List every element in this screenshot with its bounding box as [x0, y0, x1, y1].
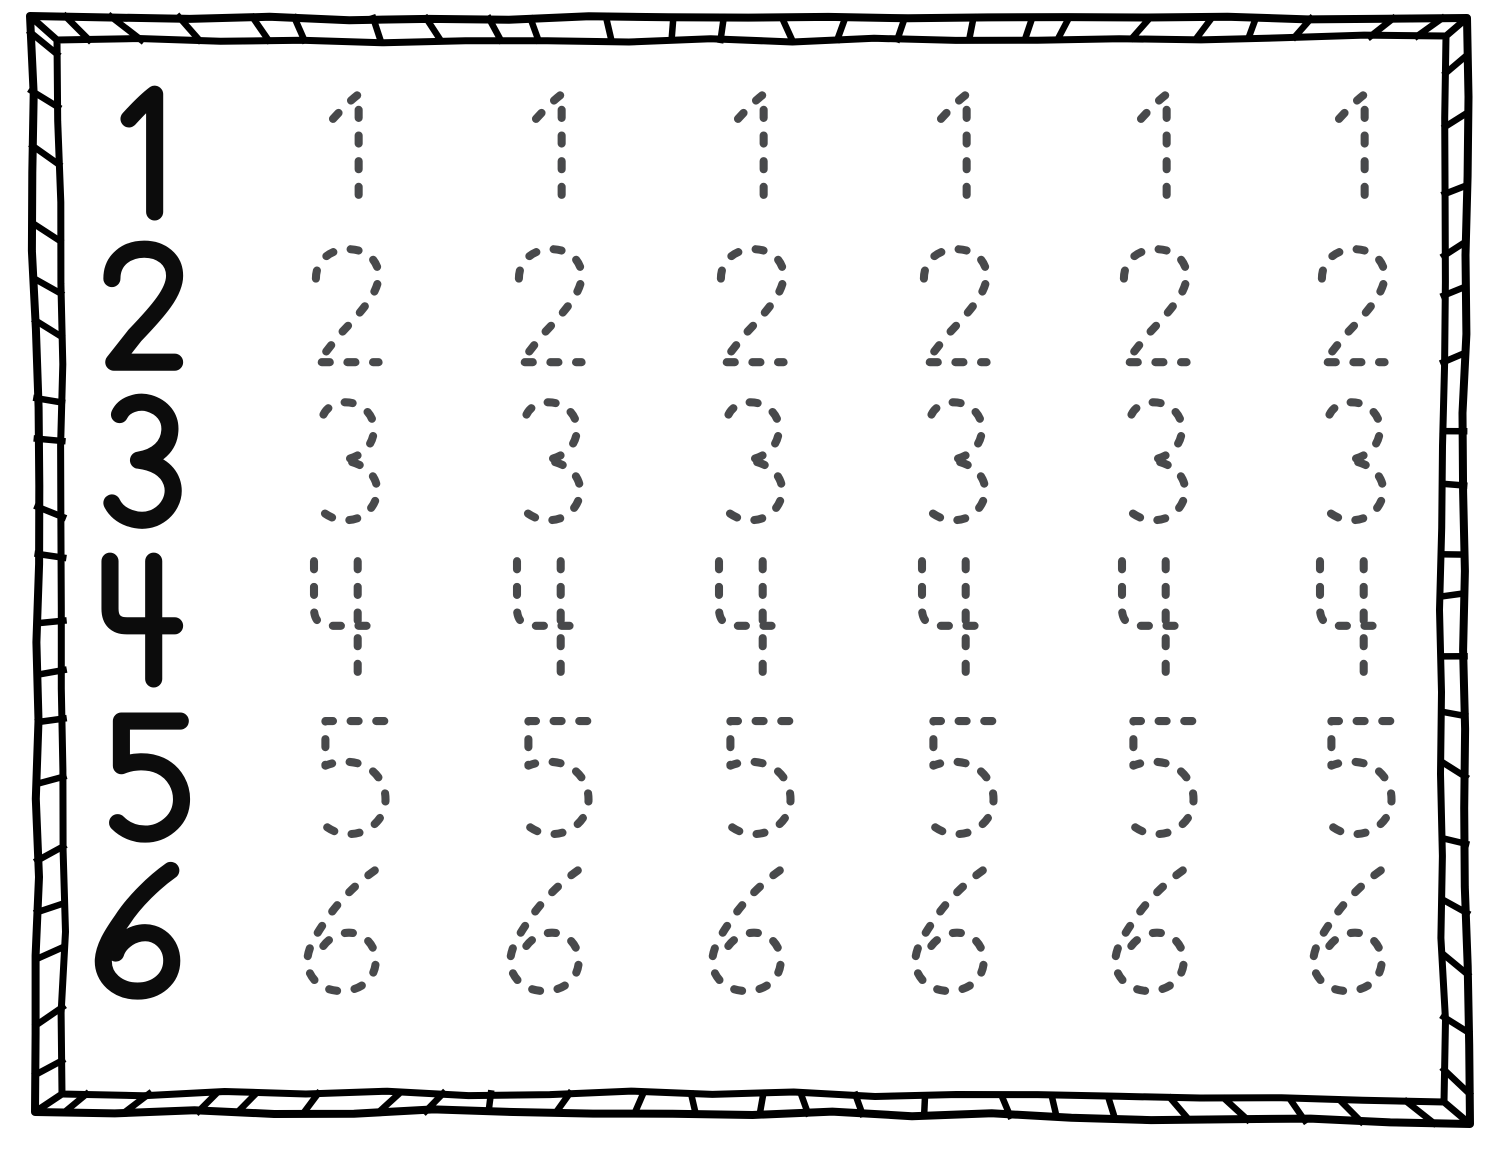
traced-number-6	[498, 859, 612, 1011]
solid-digit-stroke-3	[112, 402, 173, 520]
solid-number-2	[91, 233, 205, 385]
traced-digit-stroke-3	[1322, 402, 1383, 520]
traced-digit-stroke-6	[915, 870, 983, 991]
traced-number-1	[295, 79, 409, 231]
traced-number-1	[700, 79, 814, 231]
traced-number-1	[1103, 79, 1217, 231]
traced-number-2	[295, 233, 409, 385]
worksheet-page	[0, 0, 1500, 1150]
traced-digit-stroke-1	[738, 94, 764, 212]
traced-number-4	[903, 546, 1017, 698]
traced-digit-stroke-3	[924, 402, 985, 520]
traced-number-2	[1103, 233, 1217, 385]
traced-digit-stroke-2	[924, 249, 987, 362]
traced-digit-stroke-5	[525, 721, 589, 834]
traced-digit-stroke-2	[1322, 249, 1385, 362]
traced-number-4	[295, 546, 409, 698]
traced-number-5	[1301, 703, 1415, 855]
traced-digit-stroke-4	[1320, 561, 1385, 679]
traced-digit-stroke-6	[510, 870, 578, 991]
traced-digit-stroke-4	[1122, 561, 1187, 679]
traced-number-5	[1103, 703, 1217, 855]
traced-digit-stroke-1	[1339, 94, 1365, 212]
traced-number-3	[498, 388, 612, 540]
traced-number-6	[700, 859, 814, 1011]
traced-number-1	[903, 79, 1017, 231]
traced-digit-stroke-1	[333, 94, 359, 212]
traced-number-1	[1301, 79, 1415, 231]
traced-digit-stroke-4	[719, 561, 784, 679]
traced-number-2	[903, 233, 1017, 385]
traced-number-2	[700, 233, 814, 385]
traced-digit-stroke-5	[1130, 721, 1194, 834]
traced-digit-stroke-5	[1328, 721, 1392, 834]
traced-digit-stroke-6	[712, 870, 780, 991]
traced-number-5	[903, 703, 1017, 855]
traced-digit-stroke-3	[721, 402, 782, 520]
solid-number-5	[91, 703, 205, 855]
traced-digit-stroke-1	[536, 94, 562, 212]
traced-number-6	[295, 859, 409, 1011]
traced-digit-stroke-4	[517, 561, 582, 679]
solid-number-1	[91, 79, 205, 231]
traced-digit-stroke-3	[519, 402, 580, 520]
traced-number-2	[1301, 233, 1415, 385]
traced-number-5	[498, 703, 612, 855]
traced-number-2	[498, 233, 612, 385]
traced-digit-stroke-4	[922, 561, 987, 679]
traced-number-4	[1103, 546, 1217, 698]
traced-digit-stroke-3	[1124, 402, 1185, 520]
solid-number-6	[91, 859, 205, 1011]
traced-digit-stroke-6	[1115, 870, 1183, 991]
traced-digit-stroke-3	[316, 402, 377, 520]
traced-digit-stroke-1	[941, 94, 967, 212]
traced-digit-stroke-2	[1124, 249, 1187, 362]
traced-number-3	[1301, 388, 1415, 540]
traced-digit-stroke-2	[519, 249, 582, 362]
traced-number-6	[1301, 859, 1415, 1011]
traced-number-3	[1103, 388, 1217, 540]
traced-digit-stroke-6	[1313, 870, 1381, 991]
traced-number-5	[700, 703, 814, 855]
solid-digit-stroke-2	[112, 249, 175, 362]
traced-number-4	[700, 546, 814, 698]
traced-number-6	[903, 859, 1017, 1011]
traced-number-5	[295, 703, 409, 855]
traced-digit-stroke-2	[316, 249, 379, 362]
solid-digit-stroke-1	[129, 94, 155, 212]
solid-digit-stroke-6	[103, 870, 171, 991]
traced-digit-stroke-2	[721, 249, 784, 362]
traced-number-3	[700, 388, 814, 540]
traced-digit-stroke-5	[322, 721, 386, 834]
solid-number-3	[91, 388, 205, 540]
number-tracing-grid	[0, 0, 1500, 1150]
traced-digit-stroke-1	[1141, 94, 1167, 212]
traced-digit-stroke-6	[307, 870, 375, 991]
traced-number-4	[1301, 546, 1415, 698]
traced-number-6	[1103, 859, 1217, 1011]
solid-number-4	[91, 546, 205, 698]
solid-digit-stroke-4	[110, 561, 175, 679]
traced-digit-stroke-4	[314, 561, 379, 679]
traced-number-3	[903, 388, 1017, 540]
traced-number-1	[498, 79, 612, 231]
traced-number-4	[498, 546, 612, 698]
traced-number-3	[295, 388, 409, 540]
traced-digit-stroke-5	[930, 721, 994, 834]
traced-digit-stroke-5	[727, 721, 791, 834]
solid-digit-stroke-5	[118, 721, 182, 834]
